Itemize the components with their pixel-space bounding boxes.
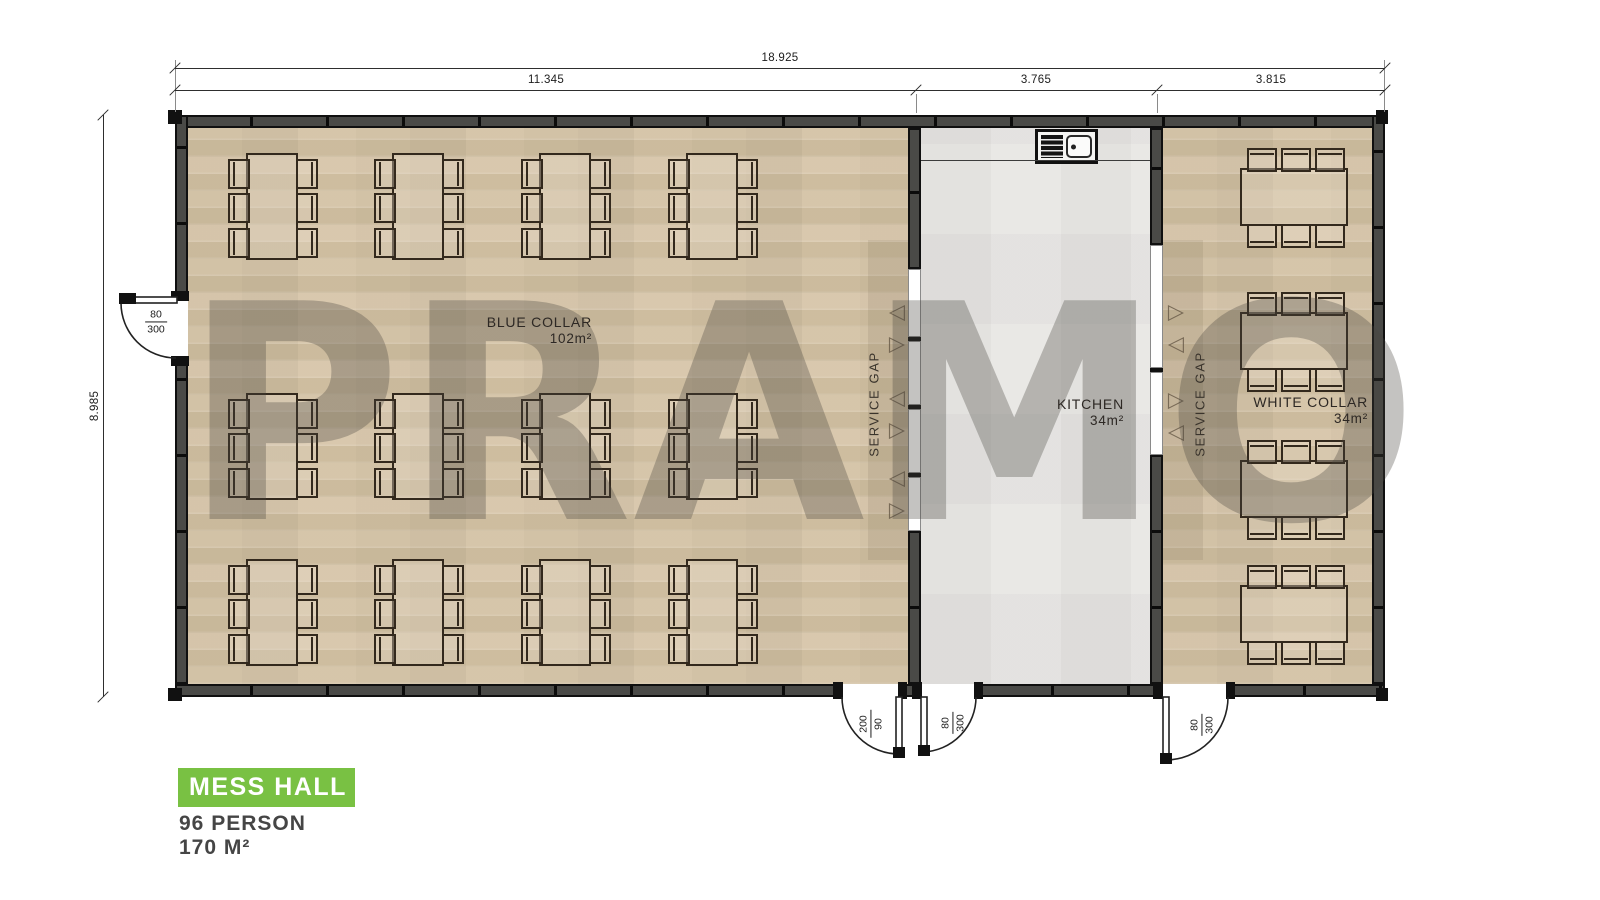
white-collar-door-size: 80 300 — [1188, 714, 1215, 736]
kitchen-label: KITCHEN 34m² — [1057, 396, 1124, 428]
dim-line-height — [103, 115, 104, 697]
door-height: 90 — [872, 710, 885, 738]
legend-capacity: 96 PERSON — [179, 812, 306, 836]
floor-plan-canvas: ◁▷◁▷◁▷▷◁▷◁ — [0, 0, 1600, 900]
legend-title: MESS HALL — [178, 773, 347, 802]
blue-collar-label: BLUE COLLAR 102m² — [487, 314, 592, 346]
kitchen-door-leaf — [921, 697, 927, 752]
dim-seg-2: 3.765 — [1021, 74, 1051, 86]
dim-line-segments — [175, 90, 1385, 91]
blue-collar-door-size: 200 90 — [857, 710, 884, 738]
door-height: 300 — [954, 712, 967, 734]
room-name: BLUE COLLAR — [487, 314, 592, 330]
room-name: KITCHEN — [1057, 396, 1124, 412]
dim-seg-1: 11.345 — [528, 74, 564, 86]
room-area: 102m² — [487, 331, 592, 346]
blue-collar-door-leaf — [896, 697, 902, 754]
left-door-size: 80 300 — [145, 308, 167, 335]
door-width: 80 — [939, 712, 953, 734]
door-width: 80 — [145, 308, 167, 322]
dim-seg-3: 3.815 — [1256, 74, 1286, 86]
hinge-block — [119, 293, 136, 304]
room-area: 34m² — [1253, 411, 1368, 426]
legend-area: 170 M² — [179, 836, 250, 860]
room-name: WHITE COLLAR — [1253, 394, 1368, 410]
service-gap-right-label: SERVICE GAP — [1193, 351, 1208, 457]
white-collar-label: WHITE COLLAR 34m² — [1253, 394, 1368, 426]
kitchen-door-size: 80 300 — [939, 712, 966, 734]
service-gap-left-label: SERVICE GAP — [867, 351, 882, 457]
hinge-block — [1160, 753, 1172, 764]
dim-total: 18.925 — [762, 52, 799, 64]
door-height: 300 — [145, 323, 167, 336]
door-width: 200 — [857, 710, 871, 738]
hinge-block — [918, 745, 930, 756]
room-area: 34m² — [1057, 413, 1124, 428]
legend-title-box: MESS HALL — [178, 768, 355, 807]
dim-height: 8.985 — [89, 391, 101, 421]
door-swings — [0, 0, 1600, 900]
door-height: 300 — [1203, 714, 1216, 736]
hinge-block — [893, 747, 905, 758]
white-collar-door-leaf — [1163, 697, 1169, 760]
dim-line-total — [175, 68, 1385, 69]
door-width: 80 — [1188, 714, 1202, 736]
